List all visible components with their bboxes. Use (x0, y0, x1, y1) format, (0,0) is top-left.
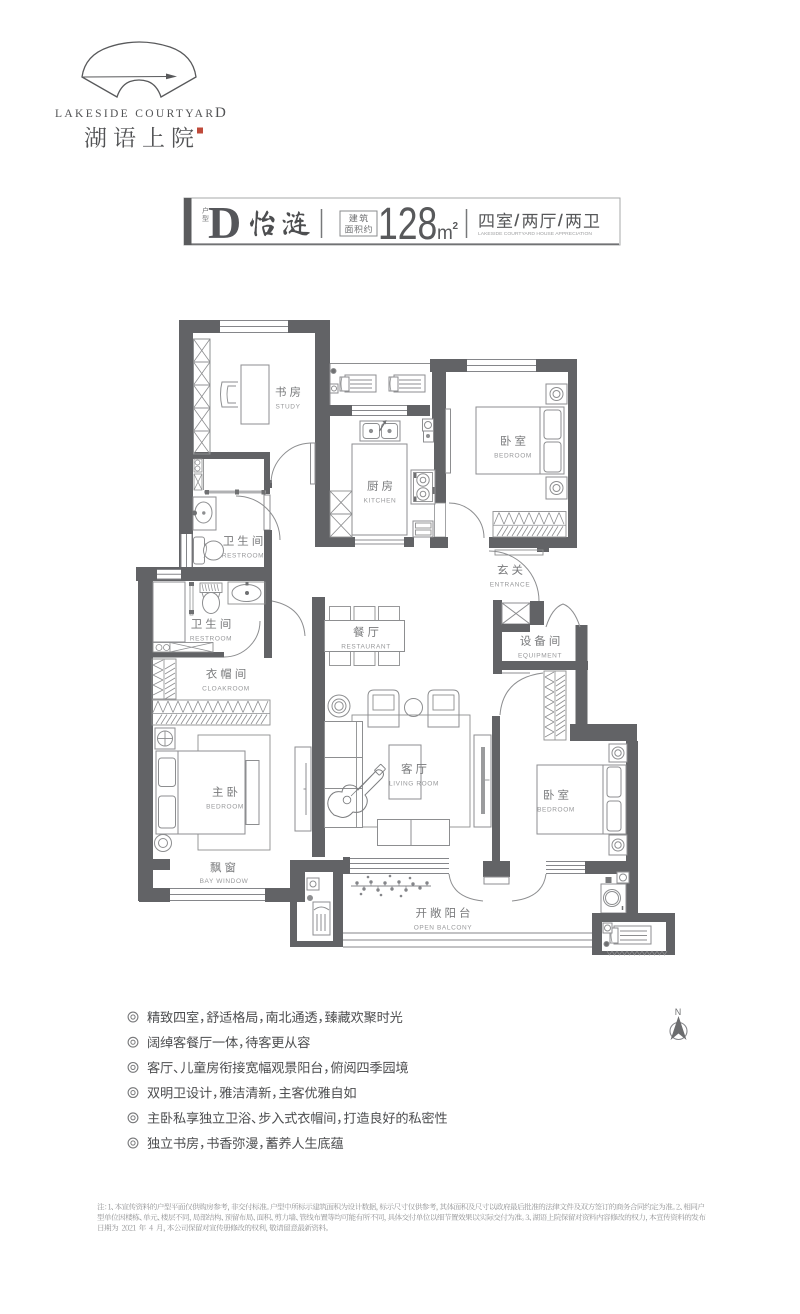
svg-text:RESTAURANT: RESTAURANT (341, 644, 391, 651)
svg-text:D: D (215, 105, 226, 121)
svg-text:BEDROOM: BEDROOM (206, 804, 244, 811)
svg-text:N: N (675, 1007, 682, 1017)
svg-text:BEDROOM: BEDROOM (537, 807, 575, 814)
svg-text:ENTRANCE: ENTRANCE (490, 582, 531, 589)
svg-text:/: / (558, 212, 563, 230)
svg-text:LIVING ROOM: LIVING ROOM (389, 781, 439, 788)
svg-text:2: 2 (453, 221, 459, 232)
svg-text:RESTROOM: RESTROOM (190, 636, 232, 643)
svg-text:KITCHEN: KITCHEN (364, 498, 397, 505)
svg-text:EQUIPMENT: EQUIPMENT (518, 653, 562, 660)
svg-text:128: 128 (378, 198, 437, 249)
svg-text:CLOAKROOM: CLOAKROOM (202, 686, 250, 693)
svg-text:LAKESIDE COURTYARD HOUSE APPRE: LAKESIDE COURTYARD HOUSE APPRECIATION (478, 231, 592, 236)
svg-text:RESTROOM: RESTROOM (222, 553, 264, 560)
svg-text:OPEN BALCONY: OPEN BALCONY (414, 925, 473, 932)
svg-text:STUDY: STUDY (275, 404, 300, 411)
svg-text:m: m (437, 223, 453, 244)
svg-text:/: / (515, 212, 520, 230)
svg-text:BEDROOM: BEDROOM (494, 453, 532, 460)
svg-text:LAKESIDE COURTYAR: LAKESIDE COURTYAR (55, 108, 213, 120)
svg-text:D: D (208, 197, 241, 248)
svg-text:BAY WINDOW: BAY WINDOW (200, 878, 249, 885)
